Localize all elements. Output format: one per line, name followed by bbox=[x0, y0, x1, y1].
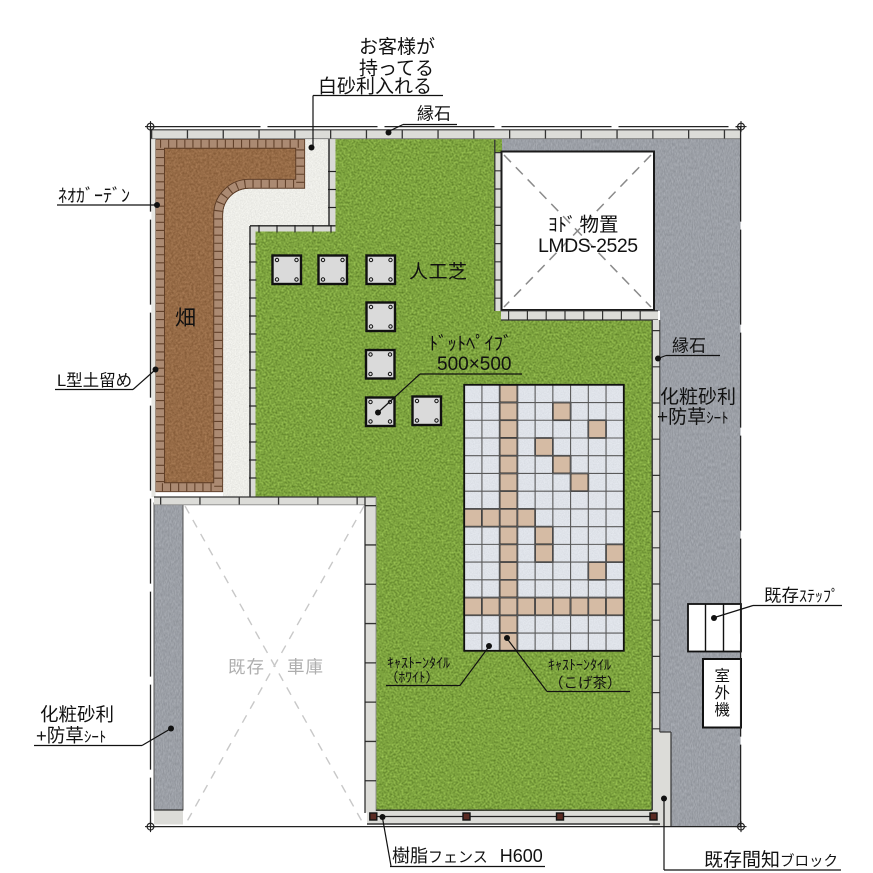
svg-text:（こげ茶）: （こげ茶） bbox=[549, 675, 622, 692]
svg-text:ﾖﾄﾞ物置: ﾖﾄﾞ物置 bbox=[548, 214, 619, 236]
svg-text:ﾈｵｶﾞｰﾃﾞﾝ: ﾈｵｶﾞｰﾃﾞﾝ bbox=[58, 186, 130, 206]
svg-text:既存間知ブロック: 既存間知ブロック bbox=[704, 849, 838, 871]
svg-text:ﾄﾞｯﾄﾍﾟｲﾌﾞ: ﾄﾞｯﾄﾍﾟｲﾌﾞ bbox=[429, 333, 512, 354]
svg-text:樹脂フェンスH600: 樹脂フェンスH600 bbox=[392, 846, 543, 866]
svg-text:化粧砂利: 化粧砂利 bbox=[660, 386, 736, 408]
svg-text:L型土留め: L型土留め bbox=[57, 371, 132, 390]
svg-text:既存: 既存 bbox=[228, 657, 265, 677]
svg-text:既存ｽﾃｯﾌﾟ: 既存ｽﾃｯﾌﾟ bbox=[764, 586, 839, 606]
svg-text:室: 室 bbox=[715, 667, 731, 685]
svg-text:化粧砂利: 化粧砂利 bbox=[40, 704, 114, 725]
svg-text:ｷｬｽﾄｰﾝﾀｲﾙ: ｷｬｽﾄｰﾝﾀｲﾙ bbox=[548, 657, 611, 673]
svg-text:機: 機 bbox=[715, 701, 731, 719]
svg-text:縁石: 縁石 bbox=[672, 337, 706, 356]
svg-text:ｷｬｽﾄｰﾝﾀｲﾙ: ｷｬｽﾄｰﾝﾀｲﾙ bbox=[387, 655, 450, 671]
svg-text:縁石: 縁石 bbox=[417, 105, 451, 124]
svg-text:500×500: 500×500 bbox=[437, 354, 512, 375]
svg-text:+防草ｼｰﾄ: +防草ｼｰﾄ bbox=[657, 406, 729, 428]
svg-text:LMDS-2525: LMDS-2525 bbox=[538, 235, 638, 257]
svg-text:車庫: 車庫 bbox=[287, 657, 324, 677]
svg-text:白砂利入れる: 白砂利入れる bbox=[318, 76, 432, 98]
svg-text:（ﾎﾜｲﾄ）: （ﾎﾜｲﾄ） bbox=[385, 670, 439, 685]
svg-text:+防草ｼｰﾄ: +防草ｼｰﾄ bbox=[36, 725, 106, 746]
svg-text:人工芝: 人工芝 bbox=[409, 261, 468, 283]
svg-text:畑: 畑 bbox=[175, 307, 196, 330]
svg-text:お客様が: お客様が bbox=[359, 36, 435, 58]
svg-text:外: 外 bbox=[715, 684, 731, 702]
